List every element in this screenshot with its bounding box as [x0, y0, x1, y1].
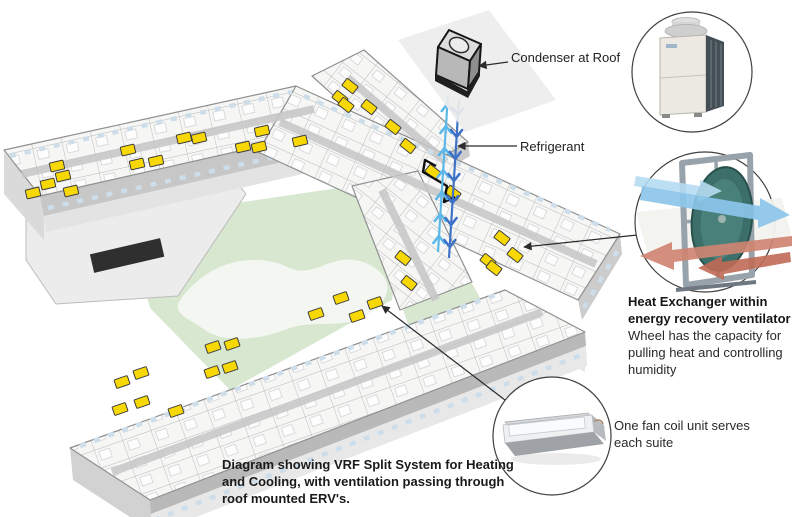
heat-exchanger-photo — [634, 152, 792, 292]
diagram-canvas: Condenser at Roof Refrigerant Heat Excha… — [0, 0, 800, 517]
fan-coil-text: One fan coil unit serves each suite — [614, 417, 750, 451]
heat-exchanger-body-line1: Wheel has the capacity for — [628, 327, 800, 344]
heat-exchanger-title-line2: energy recovery ventilator — [628, 310, 800, 327]
fan-coil-unit-marker — [133, 366, 149, 379]
fan-coil-unit-marker — [134, 395, 150, 408]
heat-exchanger-text: Heat Exchanger within energy recovery ve… — [628, 293, 800, 378]
fan-coil-unit-marker — [112, 402, 128, 415]
caption-line3: roof mounted ERV's. — [222, 490, 514, 507]
condenser-label: Condenser at Roof — [511, 49, 620, 66]
refrigerant-label: Refrigerant — [520, 138, 584, 155]
condenser-photo — [632, 12, 752, 132]
diagram-caption: Diagram showing VRF Split System for Hea… — [222, 456, 514, 507]
fan-coil-unit-marker — [114, 375, 130, 388]
heat-exchanger-body-line3: humidity — [628, 361, 800, 378]
caption-line2: and Cooling, with ventilation passing th… — [222, 473, 514, 490]
fan-coil-label-line1: One fan coil unit serves — [614, 417, 750, 434]
fan-coil-label-line2: each suite — [614, 434, 750, 451]
caption-line1: Diagram showing VRF Split System for Hea… — [222, 456, 514, 473]
heat-exchanger-body-line2: pulling heat and controlling — [628, 344, 800, 361]
heat-exchanger-title-line1: Heat Exchanger within — [628, 293, 800, 310]
